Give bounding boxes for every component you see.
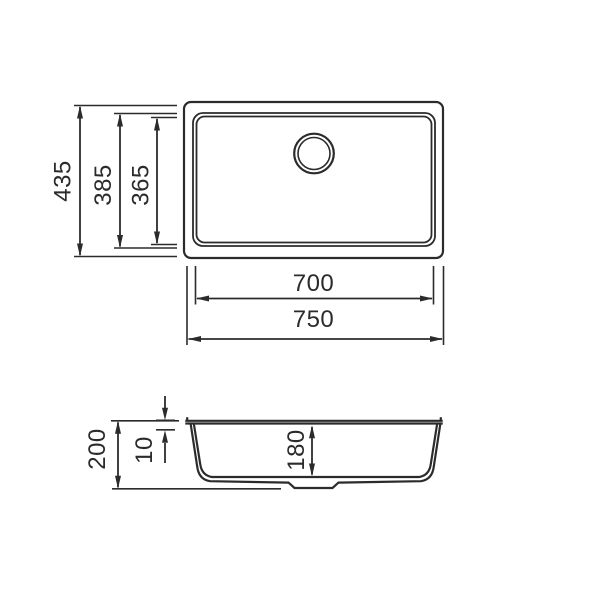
arrow-down [162, 408, 168, 421]
arrow-down [77, 244, 83, 257]
dim-label-180: 180 [283, 429, 310, 471]
drain-inner-circle [298, 138, 330, 170]
arrow-down [115, 476, 121, 489]
dim-700: 700 [196, 266, 434, 305]
arrow-right [430, 336, 443, 342]
sink-basin-outline [197, 117, 432, 243]
dim-label-750: 750 [293, 306, 335, 333]
arrow-up [154, 118, 160, 131]
sink-technical-drawing: 435 385 365 700 750 [0, 0, 600, 600]
drawing-canvas: 435 385 365 700 750 [0, 0, 600, 600]
dim-label-435: 435 [50, 160, 77, 202]
arrow-left [188, 336, 201, 342]
section-view [185, 417, 442, 488]
plan-view [184, 102, 443, 258]
arrow-up [77, 106, 83, 119]
arrow-left [196, 296, 209, 302]
arrow-down [154, 232, 160, 245]
arrow-up [117, 114, 123, 127]
dim-200: 200 [84, 421, 281, 489]
dim-180: 180 [283, 425, 315, 476]
arrow-up [115, 421, 121, 434]
dim-10: 10 [131, 396, 175, 464]
arrow-up [162, 430, 168, 443]
basin-outer-profile [191, 424, 441, 489]
arrow-right [420, 296, 433, 302]
dim-label-200: 200 [84, 428, 111, 470]
arrow-down [117, 235, 123, 248]
basin-inner-profile [194, 424, 437, 478]
dim-label-385: 385 [90, 164, 117, 206]
sink-outer-outline [184, 102, 443, 258]
dim-label-700: 700 [293, 270, 335, 297]
dim-365: 365 [128, 118, 178, 245]
dim-label-10: 10 [131, 436, 158, 464]
dim-label-365: 365 [128, 164, 155, 206]
drain-outer-circle [294, 134, 334, 174]
